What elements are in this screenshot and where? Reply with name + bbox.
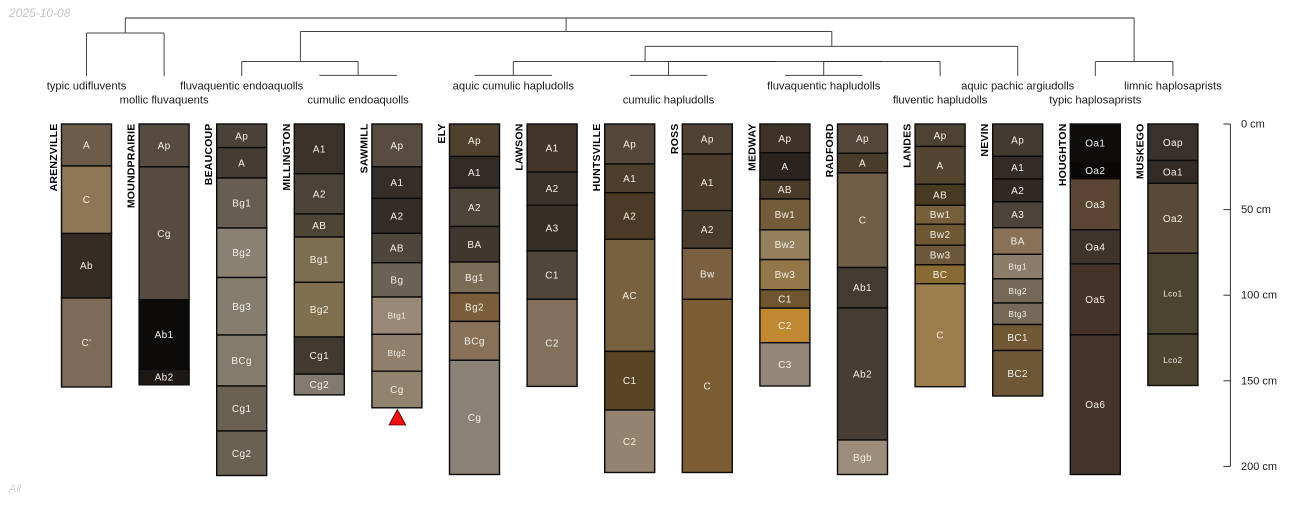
svg-text:fluvaquentic hapludolls: fluvaquentic hapludolls (767, 81, 881, 93)
svg-text:2025-10-08: 2025-10-08 (8, 6, 71, 20)
svg-text:A1: A1 (1011, 163, 1024, 174)
svg-text:200 cm: 200 cm (1241, 461, 1277, 473)
svg-text:HOUGHTON: HOUGHTON (1057, 124, 1069, 187)
svg-text:A: A (83, 141, 90, 152)
svg-text:Oa1: Oa1 (1085, 139, 1105, 150)
svg-text:Btg3: Btg3 (1008, 310, 1026, 319)
svg-text:A1: A1 (468, 168, 481, 179)
svg-text:Ab2: Ab2 (155, 373, 174, 384)
svg-text:C: C (83, 195, 91, 206)
svg-text:fluventic hapludolls: fluventic hapludolls (893, 95, 988, 107)
svg-text:SAWMILL: SAWMILL (358, 123, 370, 173)
svg-text:fluvaquentic endoaquolls: fluvaquentic endoaquolls (180, 81, 304, 93)
svg-text:A2: A2 (390, 211, 403, 222)
svg-text:RADFORD: RADFORD (824, 123, 836, 177)
svg-text:A2: A2 (1011, 186, 1024, 197)
svg-text:typic udifluvents: typic udifluvents (47, 81, 127, 93)
svg-text:ELY: ELY (436, 124, 448, 144)
svg-text:Bgb: Bgb (853, 453, 872, 464)
svg-text:100 cm: 100 cm (1241, 290, 1277, 302)
svg-text:A2: A2 (313, 189, 326, 200)
svg-text:A1: A1 (390, 178, 403, 189)
svg-text:AB: AB (390, 244, 404, 255)
svg-text:Oa2: Oa2 (1163, 214, 1183, 225)
svg-text:A2: A2 (701, 225, 714, 236)
svg-text:A1: A1 (701, 178, 714, 189)
svg-text:A3: A3 (546, 224, 559, 235)
svg-text:Bg: Bg (390, 275, 403, 286)
svg-text:Oa5: Oa5 (1085, 295, 1105, 306)
svg-text:Btg1: Btg1 (1008, 263, 1026, 272)
svg-text:Cg2: Cg2 (310, 380, 330, 391)
svg-text:limnic haplosaprists: limnic haplosaprists (1124, 81, 1222, 93)
svg-text:Oa2: Oa2 (1085, 166, 1105, 177)
svg-text:aquic cumulic hapludolls: aquic cumulic hapludolls (453, 81, 575, 93)
svg-text:typic haplosaprists: typic haplosaprists (1049, 95, 1141, 107)
svg-text:A2: A2 (623, 211, 636, 222)
svg-text:BC2: BC2 (1007, 369, 1028, 380)
svg-text:Ab: Ab (80, 261, 93, 272)
svg-text:Ab2: Ab2 (853, 370, 872, 381)
svg-text:Ap: Ap (468, 136, 481, 147)
svg-text:cumulic endoaquolls: cumulic endoaquolls (307, 95, 409, 107)
svg-text:Cg: Cg (468, 413, 482, 424)
svg-text:A1: A1 (546, 144, 559, 155)
svg-text:A: A (781, 162, 788, 173)
svg-text:A2: A2 (468, 203, 481, 214)
svg-text:Bg1: Bg1 (232, 199, 251, 210)
svg-text:C1: C1 (545, 271, 559, 282)
svg-text:A1: A1 (623, 174, 636, 185)
svg-text:MILLINGTON: MILLINGTON (281, 124, 293, 191)
svg-text:Bg3: Bg3 (232, 302, 251, 313)
svg-text:Bg2: Bg2 (310, 305, 329, 316)
svg-text:C: C (859, 216, 867, 227)
svg-text:Bw2: Bw2 (775, 240, 796, 251)
svg-text:NEVIN: NEVIN (979, 124, 991, 157)
svg-text:Lco1: Lco1 (1163, 290, 1182, 299)
svg-text:Bg1: Bg1 (465, 273, 484, 284)
svg-text:C2: C2 (623, 437, 637, 448)
svg-text:Lco2: Lco2 (1163, 356, 1182, 365)
svg-text:Ab1: Ab1 (155, 330, 174, 341)
svg-text:Bw1: Bw1 (775, 210, 796, 221)
svg-text:Oa4: Oa4 (1085, 242, 1105, 253)
svg-text:Bw3: Bw3 (775, 270, 796, 281)
svg-text:Bw1: Bw1 (930, 210, 951, 221)
svg-text:Ap: Ap (390, 141, 403, 152)
svg-text:BA: BA (1011, 237, 1025, 248)
svg-text:Oa1: Oa1 (1163, 167, 1183, 178)
svg-text:0 cm: 0 cm (1241, 119, 1265, 131)
svg-text:Bg2: Bg2 (465, 303, 484, 314)
svg-text:BC: BC (933, 270, 948, 281)
svg-text:Cg1: Cg1 (310, 351, 330, 362)
svg-text:A: A (937, 161, 944, 172)
svg-text:AB: AB (778, 185, 792, 196)
svg-text:Bg2: Bg2 (232, 248, 251, 259)
svg-text:Cg: Cg (157, 229, 171, 240)
svg-text:Oap: Oap (1163, 138, 1183, 149)
svg-text:MOUNDPRAIRIE: MOUNDPRAIRIE (126, 124, 138, 209)
svg-text:mollic fluvaquents: mollic fluvaquents (120, 95, 209, 107)
svg-text:C: C (703, 381, 711, 392)
svg-text:C2: C2 (545, 338, 559, 349)
svg-text:Btg2: Btg2 (1008, 287, 1026, 296)
svg-text:MUSKEGO: MUSKEGO (1134, 124, 1146, 180)
svg-text:A2: A2 (546, 184, 559, 195)
svg-text:C: C (936, 331, 944, 342)
svg-text:C1: C1 (778, 294, 792, 305)
svg-text:Bg1: Bg1 (310, 255, 329, 266)
svg-text:Btg1: Btg1 (388, 312, 406, 321)
svg-text:HUNTSVILLE: HUNTSVILLE (591, 124, 603, 192)
svg-text:AC: AC (622, 291, 637, 302)
svg-text:cumulic hapludolls: cumulic hapludolls (623, 95, 715, 107)
svg-text:LAWSON: LAWSON (514, 124, 526, 171)
svg-text:Oa6: Oa6 (1085, 400, 1105, 411)
svg-text:Btg2: Btg2 (388, 349, 406, 358)
svg-text:Bw: Bw (700, 269, 715, 280)
svg-text:A3: A3 (1011, 210, 1024, 221)
svg-text:BEAUCOUP: BEAUCOUP (203, 124, 215, 186)
svg-text:C1: C1 (623, 376, 637, 387)
svg-text:BCg: BCg (464, 336, 485, 347)
svg-text:C2: C2 (778, 321, 792, 332)
svg-text:C3: C3 (778, 360, 792, 371)
svg-text:Cg2: Cg2 (232, 449, 252, 460)
svg-text:Bw2: Bw2 (930, 230, 951, 241)
svg-text:aquic pachic argiudolls: aquic pachic argiudolls (961, 81, 1075, 93)
svg-text:AB: AB (933, 190, 947, 201)
svg-text:Ap: Ap (623, 140, 636, 151)
svg-text:ROSS: ROSS (669, 124, 681, 155)
svg-text:C': C' (82, 338, 92, 349)
svg-text:50 cm: 50 cm (1241, 204, 1271, 216)
svg-text:LANDES: LANDES (902, 124, 914, 168)
svg-text:Ap: Ap (701, 135, 714, 146)
svg-text:Ap: Ap (158, 141, 171, 152)
svg-text:BCg: BCg (231, 356, 252, 367)
svg-text:A: A (859, 159, 866, 170)
svg-text:A1: A1 (313, 144, 326, 155)
svg-text:MEDWAY: MEDWAY (746, 124, 758, 172)
svg-text:BC1: BC1 (1007, 333, 1028, 344)
svg-text:Ap: Ap (934, 131, 947, 142)
svg-text:BA: BA (467, 240, 481, 251)
svg-text:All: All (8, 483, 22, 495)
svg-text:Ap: Ap (1011, 136, 1024, 147)
svg-text:150 cm: 150 cm (1241, 375, 1277, 387)
svg-text:AB: AB (312, 221, 326, 232)
svg-text:Ap: Ap (235, 131, 248, 142)
svg-text:ARENZVILLE: ARENZVILLE (48, 124, 60, 192)
svg-text:Oa3: Oa3 (1085, 200, 1105, 211)
svg-text:Bw3: Bw3 (930, 251, 951, 262)
svg-text:Cg: Cg (390, 385, 404, 396)
svg-text:A: A (238, 158, 245, 169)
svg-text:Ap: Ap (856, 134, 869, 145)
svg-text:Ap: Ap (778, 134, 791, 145)
svg-text:Ab1: Ab1 (853, 283, 872, 294)
svg-text:Cg1: Cg1 (232, 404, 252, 415)
